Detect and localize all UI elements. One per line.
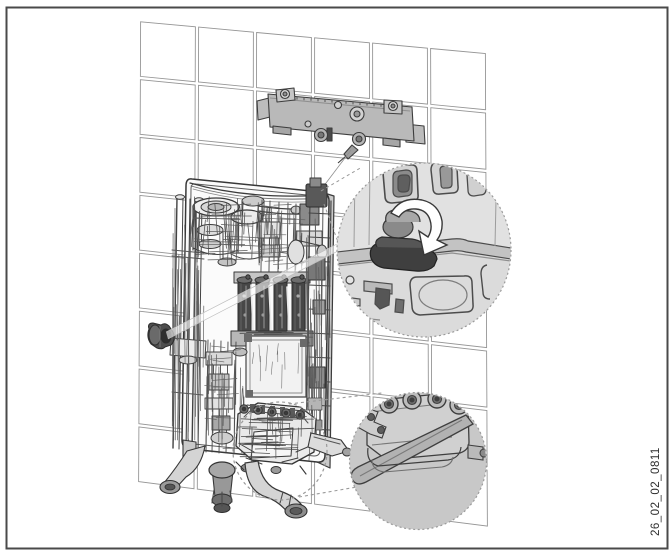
svg-text:26_02_02_0811: 26_02_02_0811 [650, 447, 662, 536]
